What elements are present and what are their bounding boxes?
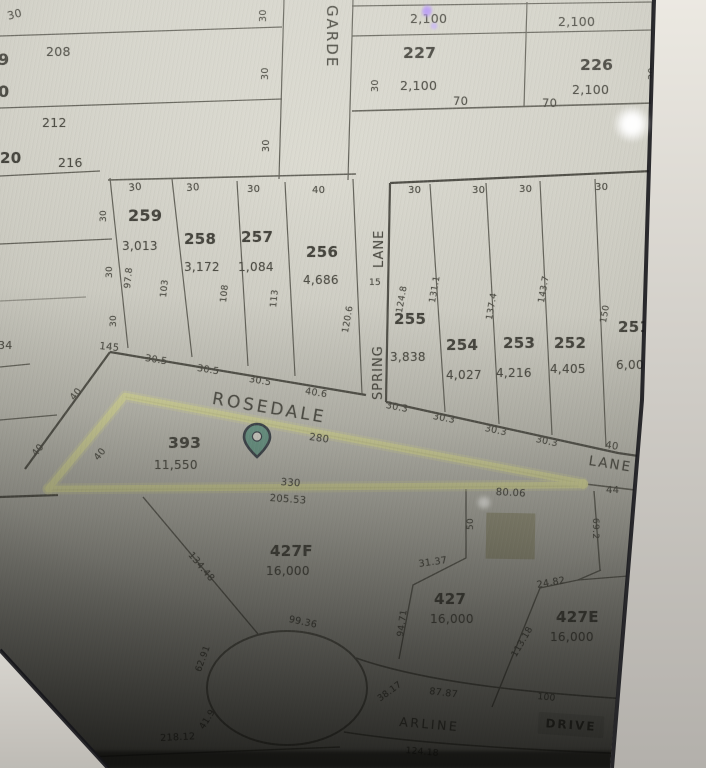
parcel-number-393: 393 bbox=[168, 434, 201, 452]
edge-dim: 280 bbox=[308, 432, 329, 446]
parcel-number-254: 254 bbox=[446, 336, 478, 354]
frontage-dim: 145 bbox=[99, 341, 120, 354]
frontage-dim: 30.3 bbox=[432, 411, 456, 426]
street-name-drive: DRIVE bbox=[545, 716, 597, 734]
lot-depth-dim: 103 bbox=[159, 279, 171, 298]
edge-dim: 38.17 bbox=[376, 680, 404, 704]
lot-width-dim: 40 bbox=[312, 185, 325, 196]
lot-width-dim: 30 bbox=[652, 17, 663, 30]
street-name-arline: ARLINE bbox=[399, 714, 460, 734]
parcel-area-251: 6,00 bbox=[616, 358, 644, 372]
map-labels-layer: 30 208 9 0 212 20 216 34 30 30 30 GARDE … bbox=[0, 0, 706, 768]
house-number-partial: 20 bbox=[0, 149, 21, 167]
frontage-dim: 30.5 bbox=[248, 374, 272, 388]
lot-depth-dim: 113 bbox=[269, 289, 281, 308]
parcel-area-252: 4,405 bbox=[550, 362, 586, 376]
edge-dim: 94.71 bbox=[396, 609, 410, 637]
edge-dim: 24.82 bbox=[536, 575, 566, 591]
parcel-number-253: 253 bbox=[503, 334, 535, 352]
edge-dim: 44 bbox=[606, 485, 619, 496]
edge-dim: 41.9 bbox=[198, 708, 218, 731]
edge-dim: 124.18 bbox=[405, 746, 439, 759]
house-number-partial: 9 bbox=[0, 50, 9, 69]
house-number-partial: 0 bbox=[0, 82, 9, 101]
parcel-number-427: 427 bbox=[434, 590, 466, 608]
lot-depth-dim: 97.8 bbox=[123, 267, 135, 289]
parcel-area-259: 3,013 bbox=[122, 239, 158, 253]
parcel-area: 2,100 bbox=[410, 11, 447, 26]
frontage-dim: 30.3 bbox=[535, 434, 559, 449]
lot-depth-dim: 143.7 bbox=[537, 275, 552, 304]
lot-width-dim: 30 bbox=[472, 185, 485, 196]
lot-depth-dim: 131.1 bbox=[428, 275, 443, 304]
parcel-area: 2,100 bbox=[558, 14, 595, 29]
edge-dim: 134.48 bbox=[186, 550, 217, 584]
edge-dim: 87.87 bbox=[429, 686, 459, 700]
parcel-number-258: 258 bbox=[184, 230, 216, 248]
street-name-spring-lane-lower: SPRING bbox=[371, 345, 386, 400]
edge-dim: 31.37 bbox=[418, 555, 448, 570]
parcel-number-226: 226 bbox=[580, 56, 613, 74]
house-number: 216 bbox=[58, 155, 83, 170]
edge-dim: 40 bbox=[92, 446, 108, 463]
parcel-number-255: 255 bbox=[394, 310, 426, 328]
parcel-area-226: 2,100 bbox=[572, 82, 609, 97]
street-name-garden: GARDE bbox=[323, 5, 341, 68]
frontage-dim: 30.5 bbox=[144, 353, 168, 367]
edge-dim: 205.53 bbox=[269, 493, 306, 507]
parcel-area-227: 2,100 bbox=[400, 78, 437, 93]
parcel-number-251: 251 bbox=[618, 318, 650, 336]
parcel-area-258: 3,172 bbox=[184, 260, 220, 274]
parcel-number-227: 227 bbox=[403, 44, 436, 62]
edge-dim: 100 bbox=[537, 692, 556, 704]
frontage-dim: 70 bbox=[453, 94, 468, 108]
edge-dim: 218.12 bbox=[160, 731, 196, 744]
parcel-area-427: 16,000 bbox=[430, 612, 474, 626]
frontage-dim: 40.6 bbox=[304, 386, 328, 400]
lot-width-dim: 30 bbox=[261, 139, 272, 152]
house-number-partial: 34 bbox=[0, 339, 13, 352]
parcel-area-254: 4,027 bbox=[446, 368, 482, 382]
street-name-spring-lane-upper: LANE bbox=[372, 230, 387, 268]
edge-dim: 113.18 bbox=[510, 625, 535, 659]
lot-width-dim: 30 bbox=[519, 184, 532, 195]
parcel-area-256: 4,686 bbox=[303, 273, 339, 287]
street-name-lane-right: LANE bbox=[587, 453, 633, 476]
lot-depth-dim: 120.6 bbox=[341, 305, 356, 334]
house-number: 30 bbox=[6, 6, 23, 22]
lot-width-dim: 30 bbox=[647, 67, 658, 80]
frontage-dim: 30.3 bbox=[385, 400, 409, 415]
parcel-number-259: 259 bbox=[128, 206, 162, 225]
edge-dim: 40 bbox=[68, 386, 84, 403]
lot-width-dim: 30 bbox=[109, 315, 119, 327]
parcel-area-393: 11,550 bbox=[154, 458, 198, 472]
photo-of-parcel-map-screen: 30 208 9 0 212 20 216 34 30 30 30 GARDE … bbox=[0, 0, 706, 768]
parcel-number-257: 257 bbox=[241, 228, 273, 246]
parcel-number-252: 252 bbox=[554, 334, 586, 352]
lot-width-dim: 30 bbox=[105, 266, 115, 278]
lot-width-dim: 30 bbox=[128, 182, 142, 194]
frontage-dim: 70 bbox=[542, 96, 557, 110]
lot-width-dim: 30 bbox=[186, 182, 200, 194]
house-number: 212 bbox=[42, 115, 67, 130]
parcel-area-257: 1,084 bbox=[238, 260, 274, 274]
edge-dim: 62.91 bbox=[194, 644, 213, 673]
lot-depth-dim: 137.4 bbox=[485, 292, 500, 321]
lot-width-dim: 30 bbox=[408, 185, 421, 196]
lot-width-dim: 30 bbox=[260, 67, 271, 80]
lot-width-dim: 30 bbox=[370, 79, 381, 92]
lot-depth-dim: 150 bbox=[599, 304, 612, 324]
street-name-drive-label-box: DRIVE bbox=[537, 712, 604, 739]
edge-dim: 69.2 bbox=[590, 518, 600, 539]
edge-dim: 80.06 bbox=[495, 487, 526, 500]
parcel-number-427e: 427E bbox=[556, 608, 599, 626]
parcel-area-255: 3,838 bbox=[390, 350, 426, 364]
frontage-dim: 30.3 bbox=[484, 423, 508, 438]
lot-width-dim: 30 bbox=[247, 184, 260, 195]
parcel-area-427e: 16,000 bbox=[550, 630, 594, 644]
lot-width-dim: 30 bbox=[595, 182, 608, 193]
lot-width-dim: 30 bbox=[258, 9, 269, 22]
lot-depth-dim: 108 bbox=[219, 284, 231, 303]
frontage-dim: 30.5 bbox=[196, 363, 220, 377]
parcel-area-253: 4,216 bbox=[496, 366, 532, 380]
edge-dim: 99.36 bbox=[288, 614, 318, 631]
edge-dim: 330 bbox=[280, 477, 301, 489]
house-number: 208 bbox=[46, 44, 71, 59]
edge-dim: 50 bbox=[466, 518, 476, 530]
parcel-number-256: 256 bbox=[306, 243, 338, 261]
edge-dim: 40 bbox=[30, 442, 46, 459]
parcel-number-427f: 427F bbox=[270, 542, 313, 560]
street-width-dim: 15 bbox=[369, 278, 381, 288]
lot-width-dim: 30 bbox=[99, 210, 109, 222]
frontage-dim: 40 bbox=[604, 440, 619, 453]
parcel-area-427f: 16,000 bbox=[266, 564, 310, 578]
